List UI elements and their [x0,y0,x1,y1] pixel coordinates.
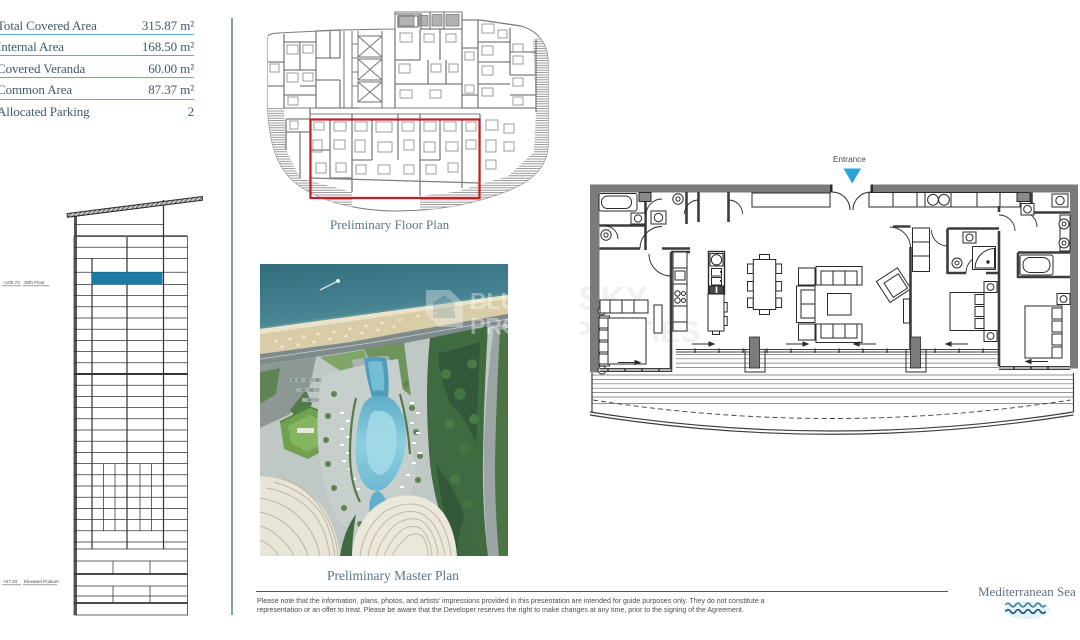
svg-text:+100.73: +100.73 [3,280,20,285]
svg-text:BLU: BLU [470,288,508,314]
svg-text:30th Floor: 30th Floor [24,280,45,285]
svg-text:+07.40: +07.40 [3,579,18,584]
svg-text:Entrance: Entrance [833,155,866,164]
svg-text:Elevated Podium: Elevated Podium [24,579,59,584]
svg-text:PRO: PRO [470,313,508,339]
